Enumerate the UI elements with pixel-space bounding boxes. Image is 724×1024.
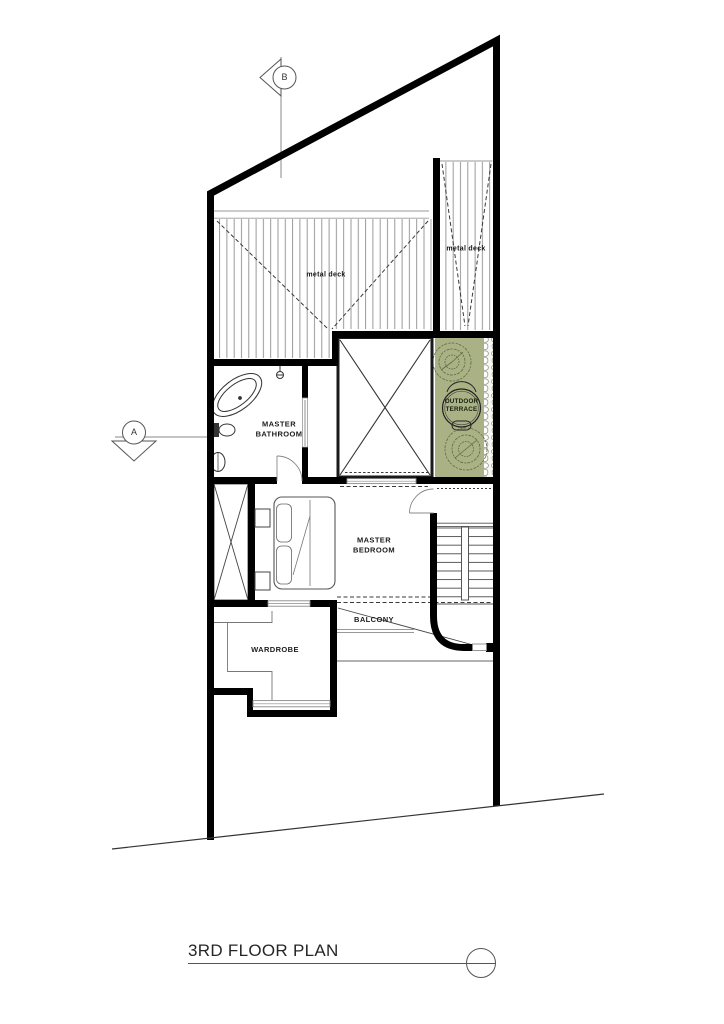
room-label-outdoor-terrace: OUTDOOR TERRACE [439,398,485,414]
section-marker-a [112,421,214,461]
pebble-strip [484,338,494,477]
floor-plan-drawing [0,0,724,1024]
room-label-master-bathroom: MASTER BATHROOM [252,419,306,439]
metal-deck-label-main: metal deck [306,270,345,279]
shaft-x-strip [214,484,248,600]
room-label-master-bedroom: MASTER BEDROOM [344,535,404,555]
room-label-balcony: BALCONY [354,615,394,625]
nightstand [255,572,270,590]
nightstand [255,509,270,527]
bed [274,497,335,589]
void-x-box [338,338,432,478]
balcony-curved-wall [434,604,474,648]
door-arc-bathroom [277,456,302,481]
pillow [277,504,292,542]
drawing-title: 3RD FLOOR PLAN [188,941,339,961]
stair-stringer [462,527,469,600]
section-marker-a-label: A [131,427,137,439]
section-marker-b-label: B [281,72,287,84]
wardrobe-counter-lines [214,611,272,700]
floor-plan-page: B A metal deck metal deck MASTER BATHROO… [0,0,724,1024]
door-arc-stairs [410,489,434,513]
stairs [437,523,493,604]
shower-head [277,366,284,379]
site-boundary-line [112,794,604,849]
metal-deck-label-right: metal deck [446,244,485,253]
room-label-wardrobe: WARDROBE [251,645,299,655]
bathtub [205,365,269,424]
pillow [277,546,292,584]
balcony-lines [337,597,495,661]
